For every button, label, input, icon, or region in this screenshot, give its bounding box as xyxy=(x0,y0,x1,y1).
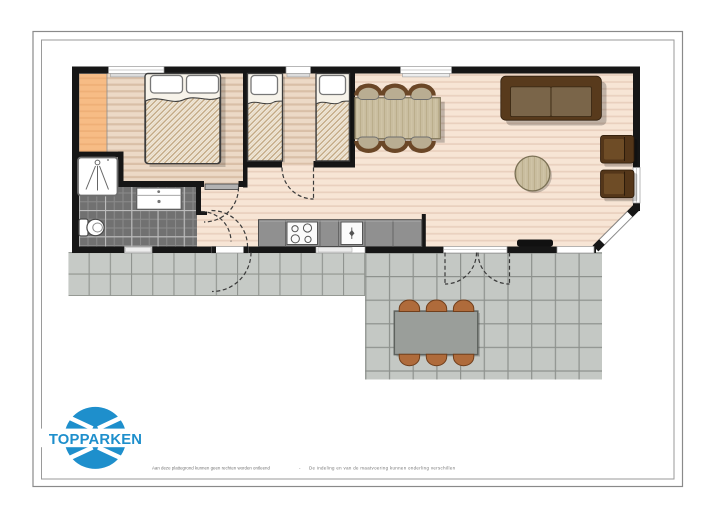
svg-text:TOPPARKEN: TOPPARKEN xyxy=(49,432,142,448)
svg-text:De indeling en van de maatvoer: De indeling en van de maatvoering kunnen… xyxy=(309,466,456,471)
svg-text:Aan deze plattegrond kunnen ge: Aan deze plattegrond kunnen geen rechten… xyxy=(152,466,270,471)
